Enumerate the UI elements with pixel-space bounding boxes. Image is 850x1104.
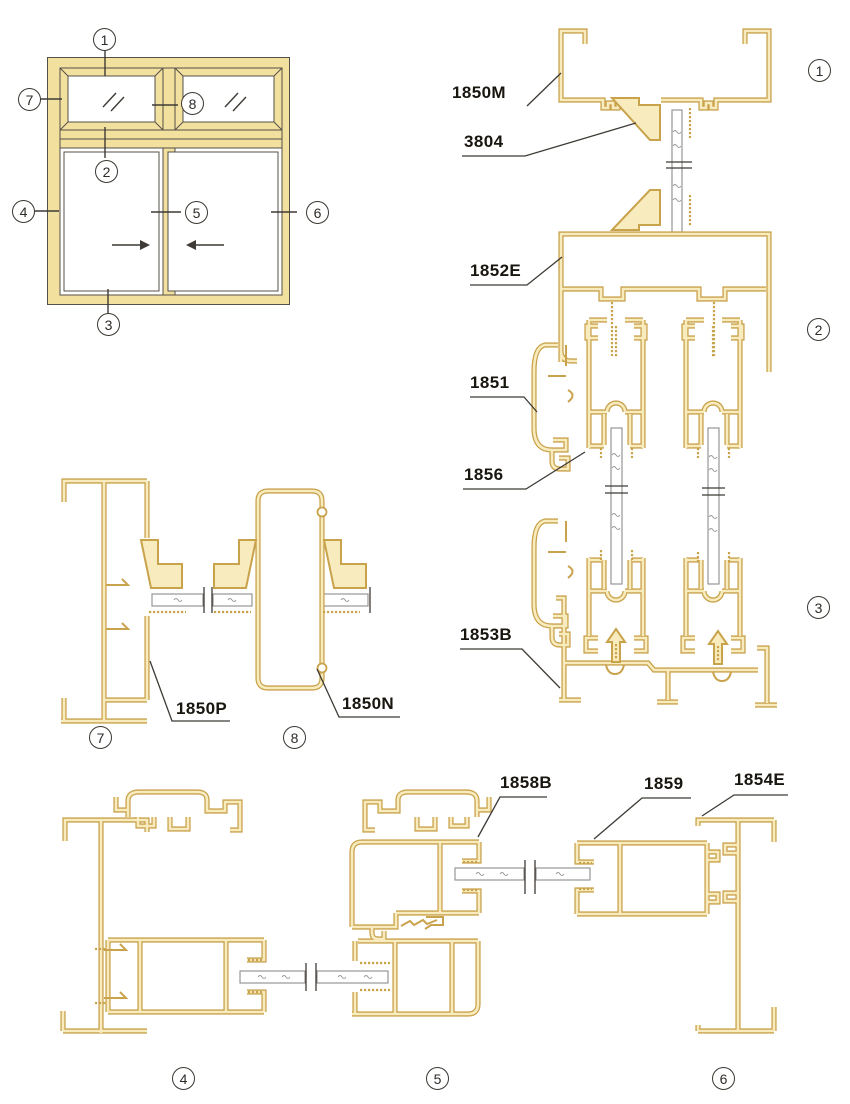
callout-elev-4: 4 — [12, 200, 35, 223]
callout-elev-8: 8 — [181, 92, 204, 115]
window-elevation — [33, 48, 297, 317]
frame-jamb-4 — [63, 820, 147, 1033]
interlock-seal-5 — [401, 917, 443, 929]
callout-section-5: 5 — [426, 1067, 449, 1090]
leader-1854E — [702, 795, 788, 816]
leader-1850M — [527, 73, 561, 106]
hook-details-1851-lower — [548, 521, 573, 578]
callout-elev-1: 1 — [93, 28, 116, 51]
callout-section-6: 6 — [712, 1067, 735, 1090]
callout-section-7: 7 — [89, 726, 112, 749]
label-1850P: 1850P — [176, 700, 227, 718]
callout-elev-7: 7 — [18, 88, 41, 111]
leader-1859 — [594, 798, 691, 839]
leader-1851 — [470, 397, 537, 412]
label-1858B: 1858B — [500, 774, 552, 792]
profile-1850M-right — [661, 31, 769, 108]
callout-section-2: 2 — [807, 318, 830, 341]
profile-1850M-right — [661, 31, 769, 108]
fine-details — [104, 345, 731, 998]
sash-box-6 — [577, 843, 718, 914]
callout-section-3: 3 — [807, 596, 830, 619]
callout-section-8: 8 — [283, 726, 306, 749]
leader-1853B — [460, 649, 560, 688]
profile-1850N — [258, 491, 322, 688]
wedge-1850P — [141, 540, 182, 588]
wedge-1850N-left — [214, 540, 256, 588]
label-1856: 1856 — [464, 466, 503, 484]
label-1851: 1851 — [470, 374, 509, 392]
profile-1850M — [561, 31, 633, 108]
profile-1850N — [258, 491, 322, 688]
callout-elev-2: 2 — [95, 160, 118, 183]
callout-elev-3: 3 — [97, 313, 120, 336]
profile-1850M — [561, 31, 633, 108]
callout-elev-5: 5 — [185, 201, 208, 224]
wedge-3804-top — [612, 98, 660, 140]
track-cover-4 — [116, 792, 240, 830]
track-cover-5 — [365, 792, 489, 830]
label-3804: 3804 — [464, 133, 503, 151]
wedge-3804-bottom — [612, 190, 660, 230]
wedge-1850N-right — [324, 540, 366, 588]
callout-section-1: 1 — [808, 59, 831, 82]
seal-fins-1850P — [106, 579, 128, 629]
callout-elev-6: 6 — [306, 201, 329, 224]
profile-1851 — [534, 345, 568, 469]
frame-jamb-4 — [63, 820, 147, 1033]
profile-1850P — [61, 481, 147, 721]
callout-section-4: 4 — [172, 1067, 195, 1090]
label-1859: 1859 — [644, 775, 683, 793]
sash-box-6 — [577, 843, 718, 914]
profile-drawing — [0, 0, 850, 1104]
label-1852E: 1852E — [470, 262, 521, 280]
profile-1852E-bottom — [561, 289, 766, 299]
label-1854E: 1854E — [734, 771, 785, 789]
label-1850M: 1850M — [452, 84, 506, 102]
label-1850N: 1850N — [342, 695, 394, 713]
profile-catalog-page: 1850M 3804 1852E 1851 1856 1853B 1850P 1… — [0, 0, 850, 1104]
label-1853B: 1853B — [460, 626, 512, 644]
